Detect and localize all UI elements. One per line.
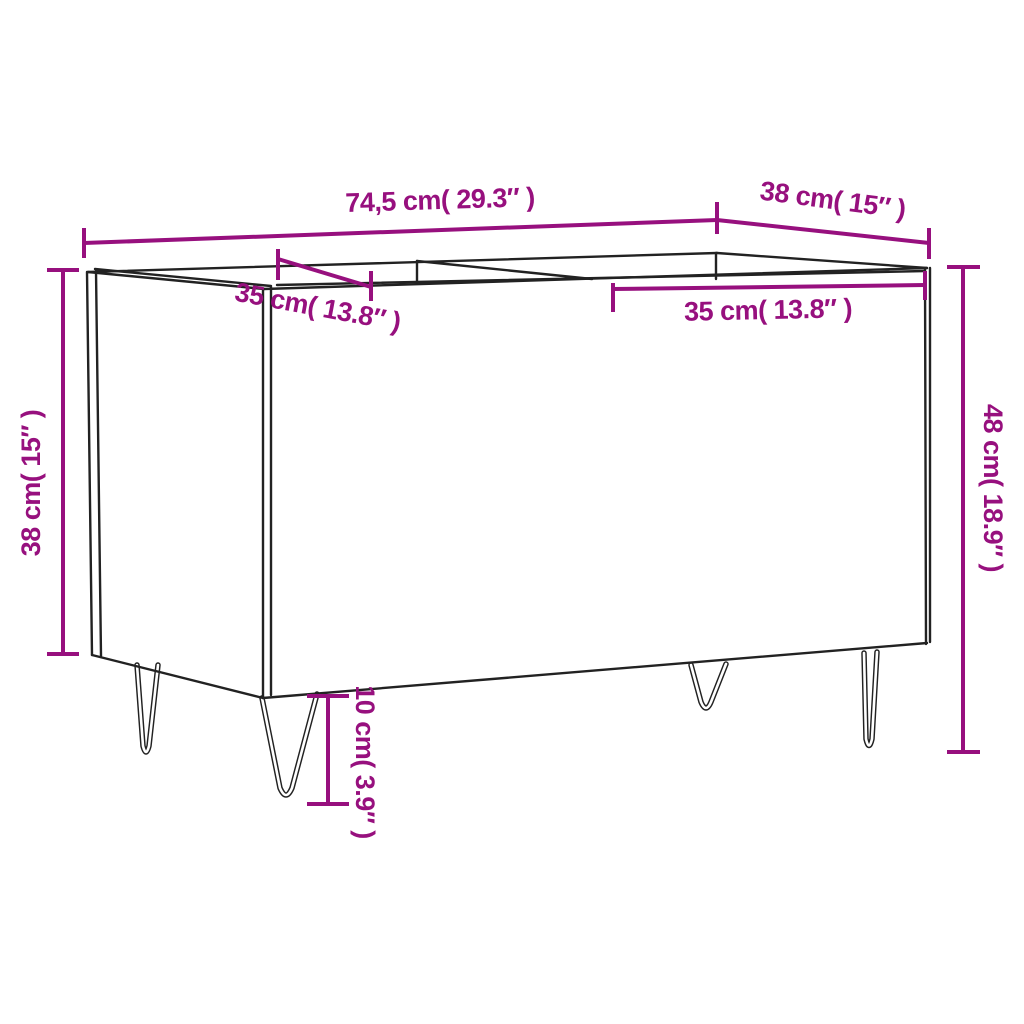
- right-compartment-line: [613, 285, 925, 289]
- overall-width-label: 74,5 cm( 29.3″ ): [345, 182, 535, 218]
- top-back-edge: [88, 253, 717, 272]
- leg-height-label: 10 cm( 3.9″ ): [350, 685, 380, 839]
- hairpin-leg-front-left-inner: [262, 694, 317, 795]
- hairpin-legs: [137, 652, 877, 795]
- left-inner-vertical-edge: [96, 271, 101, 656]
- right-outer-vertical-edge: [925, 269, 926, 644]
- dimension-lines: [47, 202, 980, 804]
- total-height-dimension: [947, 267, 980, 752]
- body-height-dimension: [47, 270, 79, 654]
- divider-top-edge: [417, 261, 592, 279]
- total-height-label: 48 cm( 18.9″ ): [978, 404, 1008, 572]
- cabinet-line-drawing: 74,5 cm( 29.3″ ) 38 cm( 15″ ) 35 cm( 13.…: [0, 0, 1024, 1024]
- right-compartment-label: 35 cm( 13.8″ ): [684, 293, 853, 327]
- body-height-label: 38 cm( 15″ ): [16, 410, 46, 557]
- bottom-left-edge: [92, 655, 263, 698]
- top-depth-dimension: [717, 220, 929, 259]
- dimension-diagram: 74,5 cm( 29.3″ ) 38 cm( 15″ ) 35 cm( 13.…: [0, 0, 1024, 1024]
- top-depth-label: 38 cm( 15″ ): [758, 176, 907, 225]
- top-right-edge: [717, 253, 927, 268]
- top-front-inner-edge: [277, 271, 925, 285]
- left-outer-vertical-edge: [87, 272, 92, 655]
- overall-width-line: [84, 220, 717, 243]
